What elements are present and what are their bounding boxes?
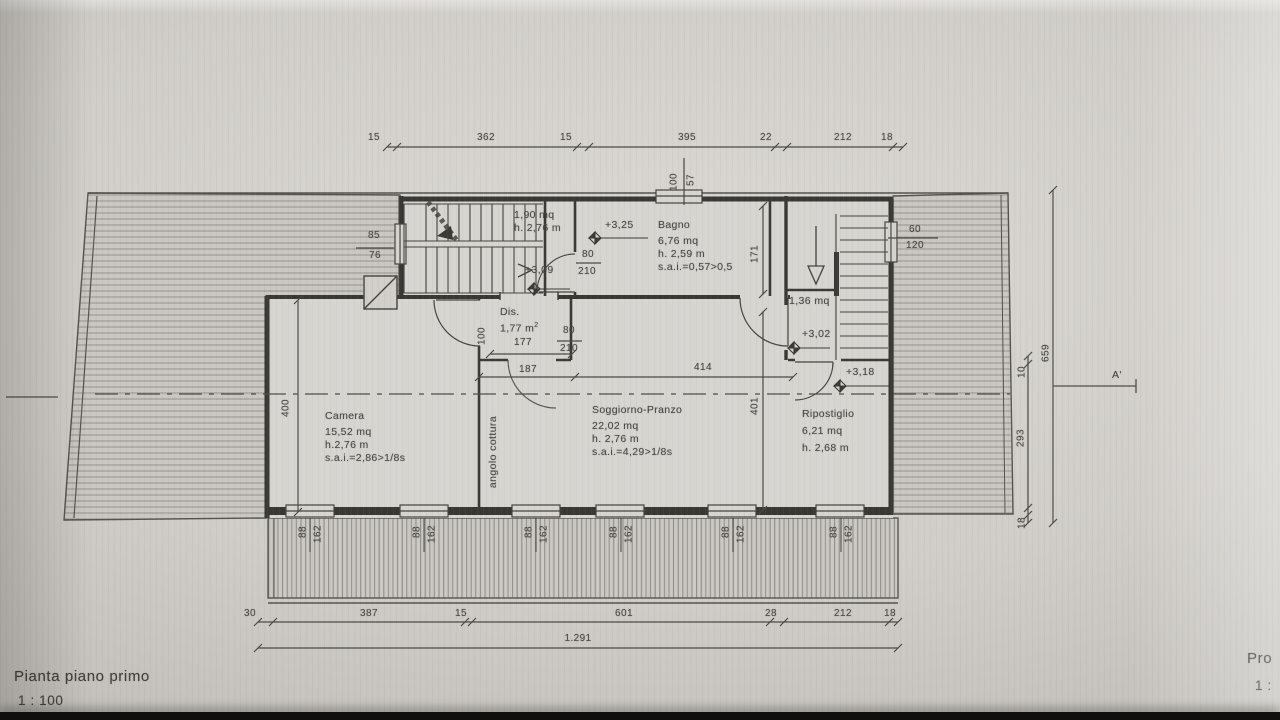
window-stair-height: 76: [369, 250, 381, 261]
bottom-window-3-w: 88: [524, 526, 535, 538]
dim-bottom-6: 212: [834, 608, 852, 619]
photo-bottom-edge: [0, 712, 1280, 720]
level-bagno: +3,25: [605, 219, 634, 231]
room-soggiorno-label: Soggiorno-Pranzo 22,02 mq h. 2,76 m s.a.…: [592, 404, 682, 459]
room-bagno-sai: s.a.i.=0,57>0,5: [658, 261, 733, 274]
section-label: A': [1112, 369, 1122, 381]
room-bagno-height: h. 2,59 m: [658, 248, 733, 261]
bottom-window-1-w: 88: [298, 526, 309, 538]
chimney-symbol: [364, 276, 397, 309]
dim-bottom-2: 387: [360, 608, 378, 619]
corner-title: Pro: [1247, 650, 1272, 667]
door-stair-width: 80: [582, 249, 594, 260]
dim-top-1: 15: [368, 132, 380, 143]
bottom-window-6-w: 88: [829, 526, 840, 538]
floor-plan-drawing: [0, 0, 1280, 720]
room-camera-height: h.2,76 m: [325, 439, 405, 452]
dim-bagno-depth: 171: [750, 245, 761, 263]
stairwell-area: 1,90 mq: [514, 209, 561, 222]
room-camera-sai: s.a.i.=2,86>1/8s: [325, 452, 405, 465]
dim-top-7: 18: [881, 132, 893, 143]
stairwell-label: 1,90 mq h. 2,76 m: [514, 209, 561, 235]
dim-bottom-3: 15: [455, 608, 467, 619]
dim-bottom-1: 30: [244, 608, 256, 619]
room-ripostiglio-area: 6,21 mq: [802, 423, 854, 440]
dim-bottom-7: 18: [884, 608, 896, 619]
dim-dis-outer-width: 187: [519, 364, 537, 375]
floor-plan-photo: 15 362 15 395 22 212 18 30 387 15 601 28…: [0, 0, 1280, 720]
bottom-window-4-h: 162: [624, 525, 635, 543]
dim-top-5: 22: [760, 132, 772, 143]
bottom-window-5-h: 162: [736, 525, 747, 543]
bottom-window-5-w: 88: [721, 526, 732, 538]
room-camera-area: 15,52 mq: [325, 426, 405, 439]
room-ripostiglio-name: Ripostiglio: [802, 406, 854, 423]
room-camera-label: Camera 15,52 mq h.2,76 m s.a.i.=2,86>1/8…: [325, 410, 405, 465]
window-bagno-height: 57: [686, 174, 697, 186]
room-ripostiglio-height: h. 2,68 m: [802, 440, 854, 457]
window-bagno-width: 100: [669, 173, 680, 191]
bottom-window-6-h: 162: [844, 525, 855, 543]
dim-bottom-total: 1.291: [564, 633, 591, 644]
window-stair-width: 85: [368, 230, 380, 241]
room-soggiorno-sai: s.a.i.=4,29>1/8s: [592, 446, 682, 459]
room-soggiorno-height: h. 2,76 m: [592, 433, 682, 446]
room-dis-name: Dis.: [500, 306, 538, 319]
room-dis-label: Dis. 1,77 m2: [500, 306, 538, 336]
bottom-window-4-w: 88: [609, 526, 620, 538]
dim-soggiorno-depth: 401: [750, 397, 761, 415]
door-dis-height: 210: [560, 343, 578, 354]
dim-top-2: 362: [477, 132, 495, 143]
terrace-hatch: [268, 518, 898, 603]
door-dis-width: 80: [563, 325, 575, 336]
stairwell-height: h. 2,76 m: [514, 222, 561, 235]
dim-dis-depth: 100: [477, 327, 488, 345]
room-ripostiglio-label: Ripostiglio 6,21 mq h. 2,68 m: [802, 406, 854, 457]
dim-right-293: 293: [1016, 429, 1027, 447]
level-stair-closet: +3,02: [802, 328, 831, 340]
dim-dis-inner-width: 177: [514, 337, 532, 348]
door-stair-height: 210: [578, 266, 596, 277]
plan-scale: 1 : 100: [18, 693, 63, 708]
dim-top-4: 395: [678, 132, 696, 143]
room-dis-area: 1,77 m2: [500, 319, 538, 336]
room-bagno-name: Bagno: [658, 219, 733, 232]
dim-camera-depth: 400: [281, 399, 292, 417]
kitchen-corner-label: angolo cottura: [487, 416, 499, 488]
stair-closet-area: 1,36 mq: [789, 295, 830, 307]
dim-right-total: 659: [1041, 344, 1052, 362]
room-soggiorno-area: 22,02 mq: [592, 420, 682, 433]
level-ripostiglio: +3,18: [846, 366, 875, 378]
dim-top-6: 212: [834, 132, 852, 143]
dim-right-18: 18: [1017, 517, 1028, 529]
dim-bottom-4: 601: [615, 608, 633, 619]
window-right-width: 60: [909, 224, 921, 235]
room-camera-name: Camera: [325, 410, 405, 423]
corner-scale: 1 :: [1255, 678, 1272, 693]
room-bagno-label: Bagno 6,76 mq h. 2,59 m s.a.i.=0,57>0,5: [658, 219, 733, 274]
room-bagno-area: 6,76 mq: [658, 235, 733, 248]
dim-bottom-5: 28: [765, 608, 777, 619]
plan-title: Pianta piano primo: [14, 668, 150, 685]
dim-top-3: 15: [560, 132, 572, 143]
bottom-window-2-h: 162: [427, 525, 438, 543]
bottom-window-2-w: 88: [412, 526, 423, 538]
dim-right-10: 10: [1017, 366, 1028, 378]
bottom-window-3-h: 162: [539, 525, 550, 543]
room-soggiorno-name: Soggiorno-Pranzo: [592, 404, 682, 417]
window-right-height: 120: [906, 240, 924, 251]
bottom-window-1-h: 162: [313, 525, 324, 543]
level-landing: +3,09: [525, 264, 554, 276]
dim-soggiorno-width: 414: [694, 362, 712, 373]
